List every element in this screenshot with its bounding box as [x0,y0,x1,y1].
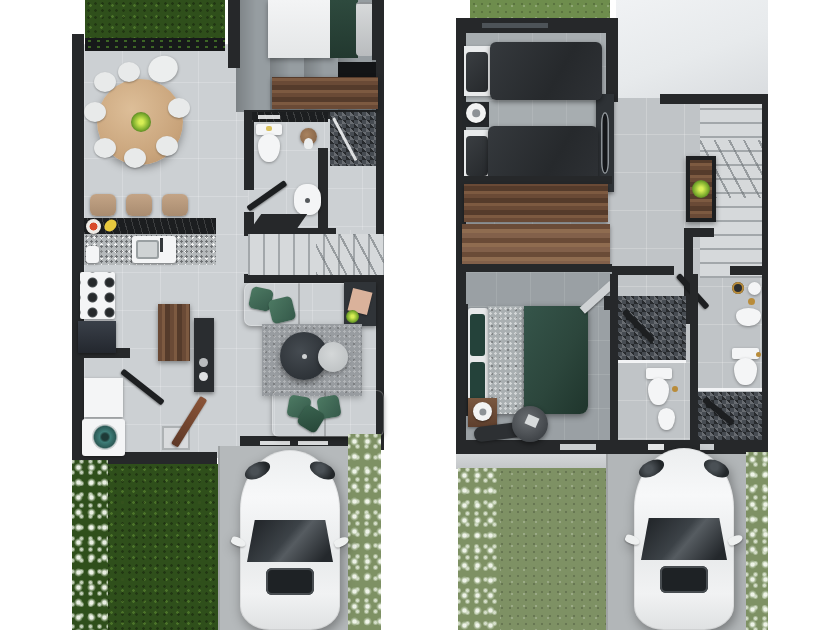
top-grass-sliver [470,0,610,20]
vanity-mirror-gold [732,282,744,294]
master-green-duvet [524,306,588,414]
ensuite-shower [618,296,686,360]
bath-divider-wall [690,274,698,440]
garden-shrub-border-2 [458,468,500,630]
vanity-gold-small [748,298,755,305]
bottom-window-glass-a [560,444,596,450]
bath-wall-top-b [730,266,764,275]
ensuite-left-wall [610,274,618,440]
wall-kids-void [606,18,618,102]
wall-right-outer-2 [762,96,768,454]
kids-window-glass [482,23,548,28]
second-floor-plan [0,0,840,630]
bath2-gold-button [756,352,761,357]
car-windshield [641,518,727,560]
closet-lower [462,224,610,266]
vanity-dish [748,282,761,295]
kids-bed-duvet [490,42,602,100]
closet-frame-top [460,176,612,184]
car-second-floor [628,448,740,630]
car-sunroof [660,566,708,593]
driveway-shrub-border-right-2 [746,452,768,630]
floor-plan-image [0,0,840,630]
ensuite-shower-glass [618,360,686,363]
ensuite-gold-fitting [672,386,678,392]
beam-void [660,94,768,104]
master-lamp [473,402,492,421]
stair-console-plant [692,180,710,198]
master-pillow-green [470,314,485,356]
bath2-shower-glass [698,388,762,391]
kids-bed-pillow [466,136,488,176]
kids-nightstand-lamp [466,103,486,123]
bath-wall-top-a [612,266,674,275]
wardrobe-mirror [601,112,609,174]
open-void [616,0,768,98]
closet-upper [464,184,608,222]
kids-bed-pillow [466,52,488,92]
closet-frame-bottom [460,264,612,272]
